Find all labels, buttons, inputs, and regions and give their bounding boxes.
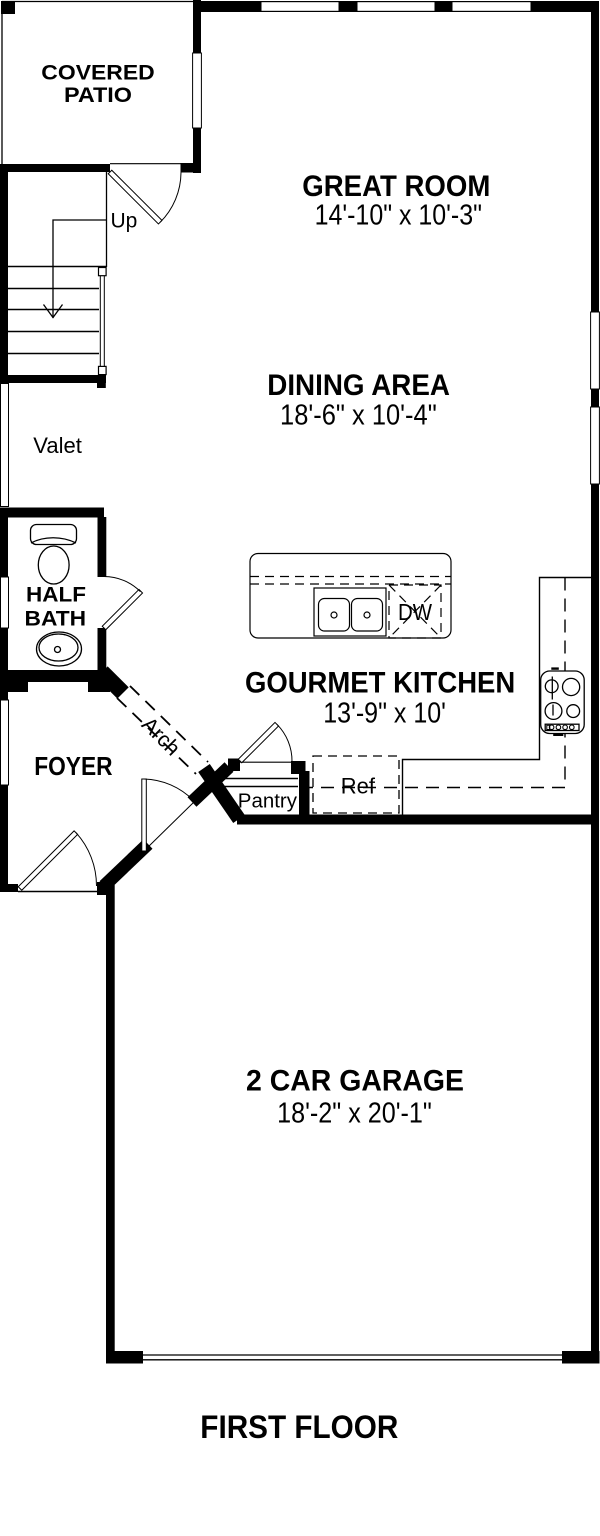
svg-text:GREAT ROOM: GREAT ROOM — [302, 170, 490, 203]
svg-text:DW: DW — [398, 599, 432, 625]
svg-text:Up: Up — [111, 210, 138, 233]
svg-text:HALF: HALF — [26, 584, 86, 607]
svg-text:Pantry: Pantry — [238, 791, 297, 813]
svg-text:DINING AREA: DINING AREA — [267, 369, 450, 402]
svg-text:18'-2" x 20'-1": 18'-2" x 20'-1" — [277, 1098, 432, 1130]
svg-text:PATIO: PATIO — [64, 83, 132, 107]
svg-text:COVERED: COVERED — [41, 60, 154, 84]
svg-text:GOURMET KITCHEN: GOURMET KITCHEN — [245, 667, 515, 700]
svg-text:FOYER: FOYER — [34, 751, 112, 781]
svg-text:Valet: Valet — [33, 433, 82, 458]
svg-text:2 CAR GARAGE: 2 CAR GARAGE — [246, 1065, 464, 1098]
svg-text:18'-6" x 10'-4": 18'-6" x 10'-4" — [280, 400, 437, 432]
svg-text:FIRST FLOOR: FIRST FLOOR — [200, 1409, 398, 1445]
svg-text:13'-9" x 10': 13'-9" x 10' — [323, 698, 446, 730]
svg-text:BATH: BATH — [25, 608, 87, 631]
svg-text:14'-10" x 10'-3": 14'-10" x 10'-3" — [315, 200, 482, 232]
svg-text:Ref: Ref — [341, 774, 376, 799]
